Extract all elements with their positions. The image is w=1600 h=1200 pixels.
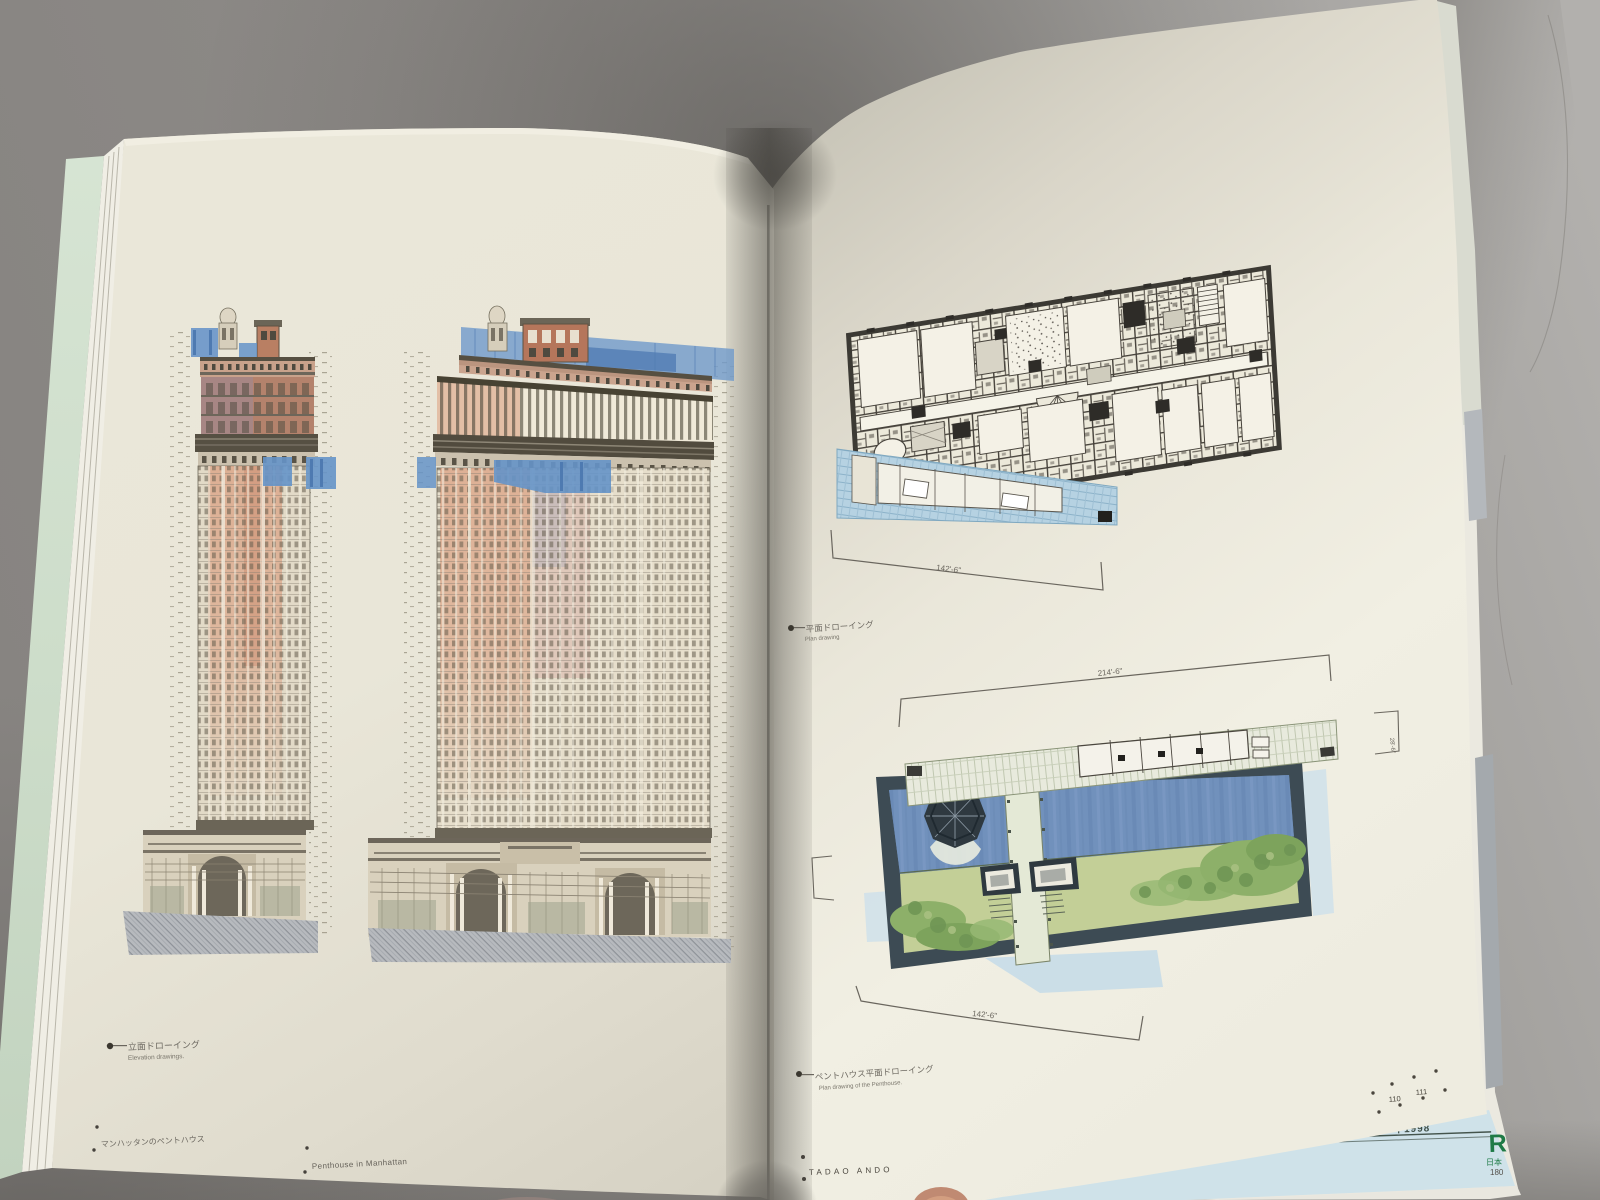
svg-text:日本: 日本 [1486, 1157, 1502, 1167]
svg-text:180: 180 [1490, 1168, 1504, 1177]
svg-text:R: R [1488, 1129, 1507, 1158]
svg-text:110: 110 [1388, 1094, 1401, 1104]
svg-text:111: 111 [1415, 1087, 1427, 1097]
